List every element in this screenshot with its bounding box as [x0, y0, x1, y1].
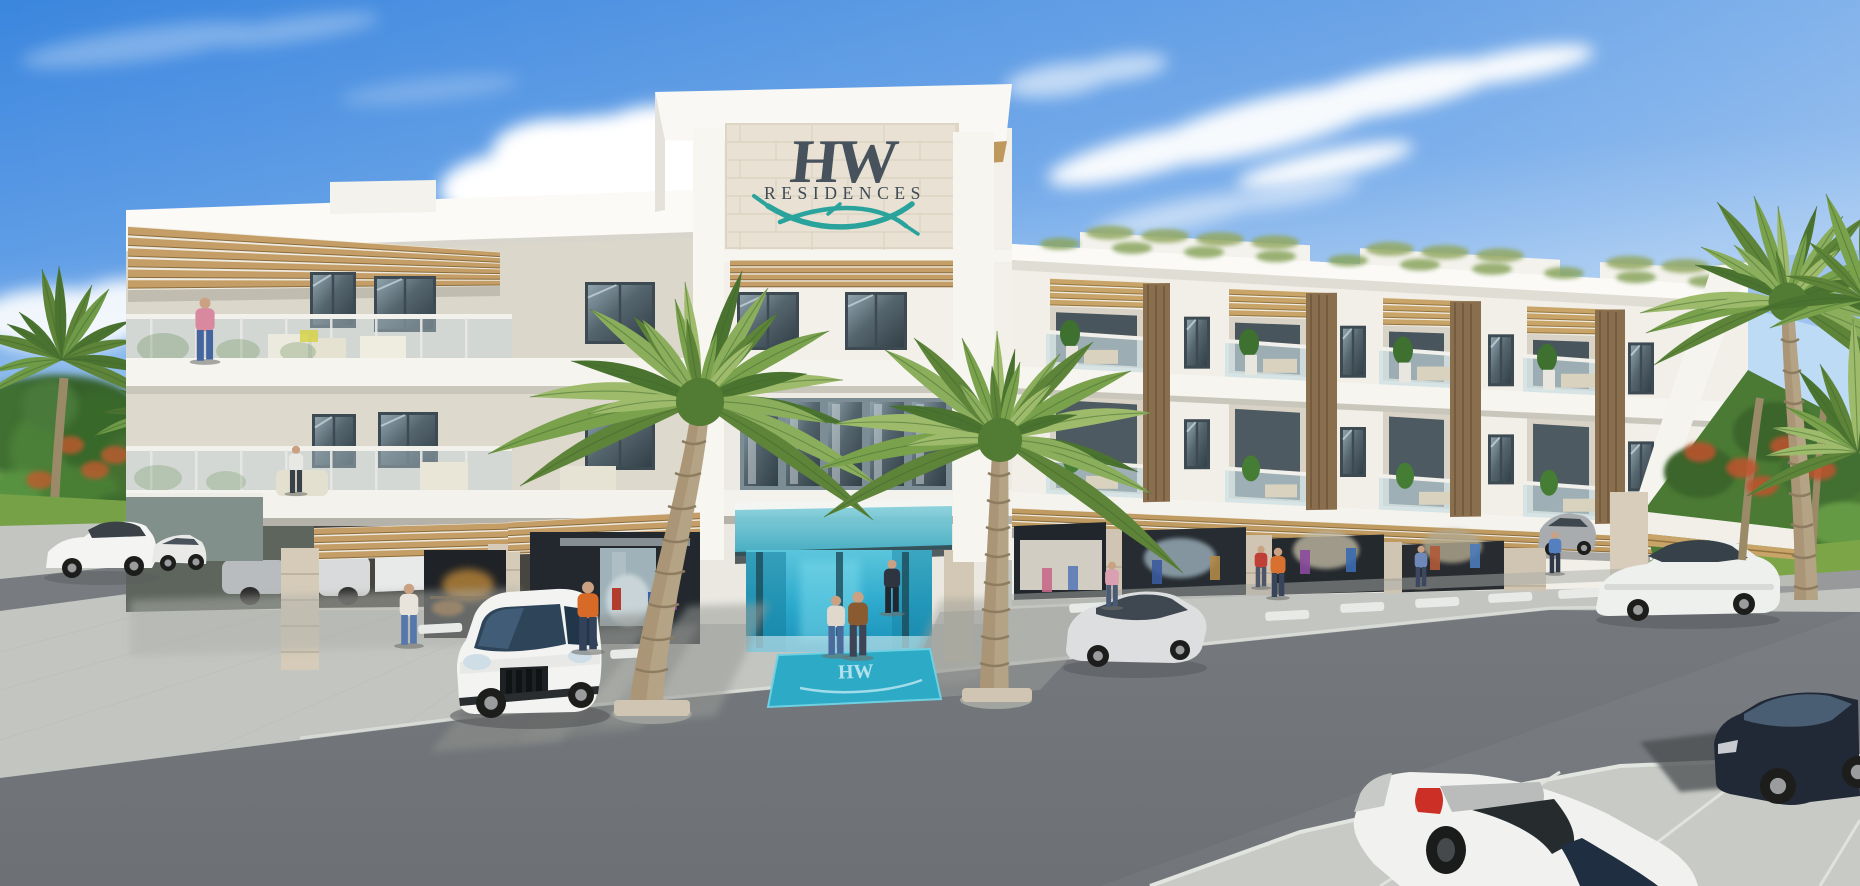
svg-text:RESIDENCES: RESIDENCES — [764, 183, 926, 203]
svg-text:HW: HW — [838, 660, 874, 683]
